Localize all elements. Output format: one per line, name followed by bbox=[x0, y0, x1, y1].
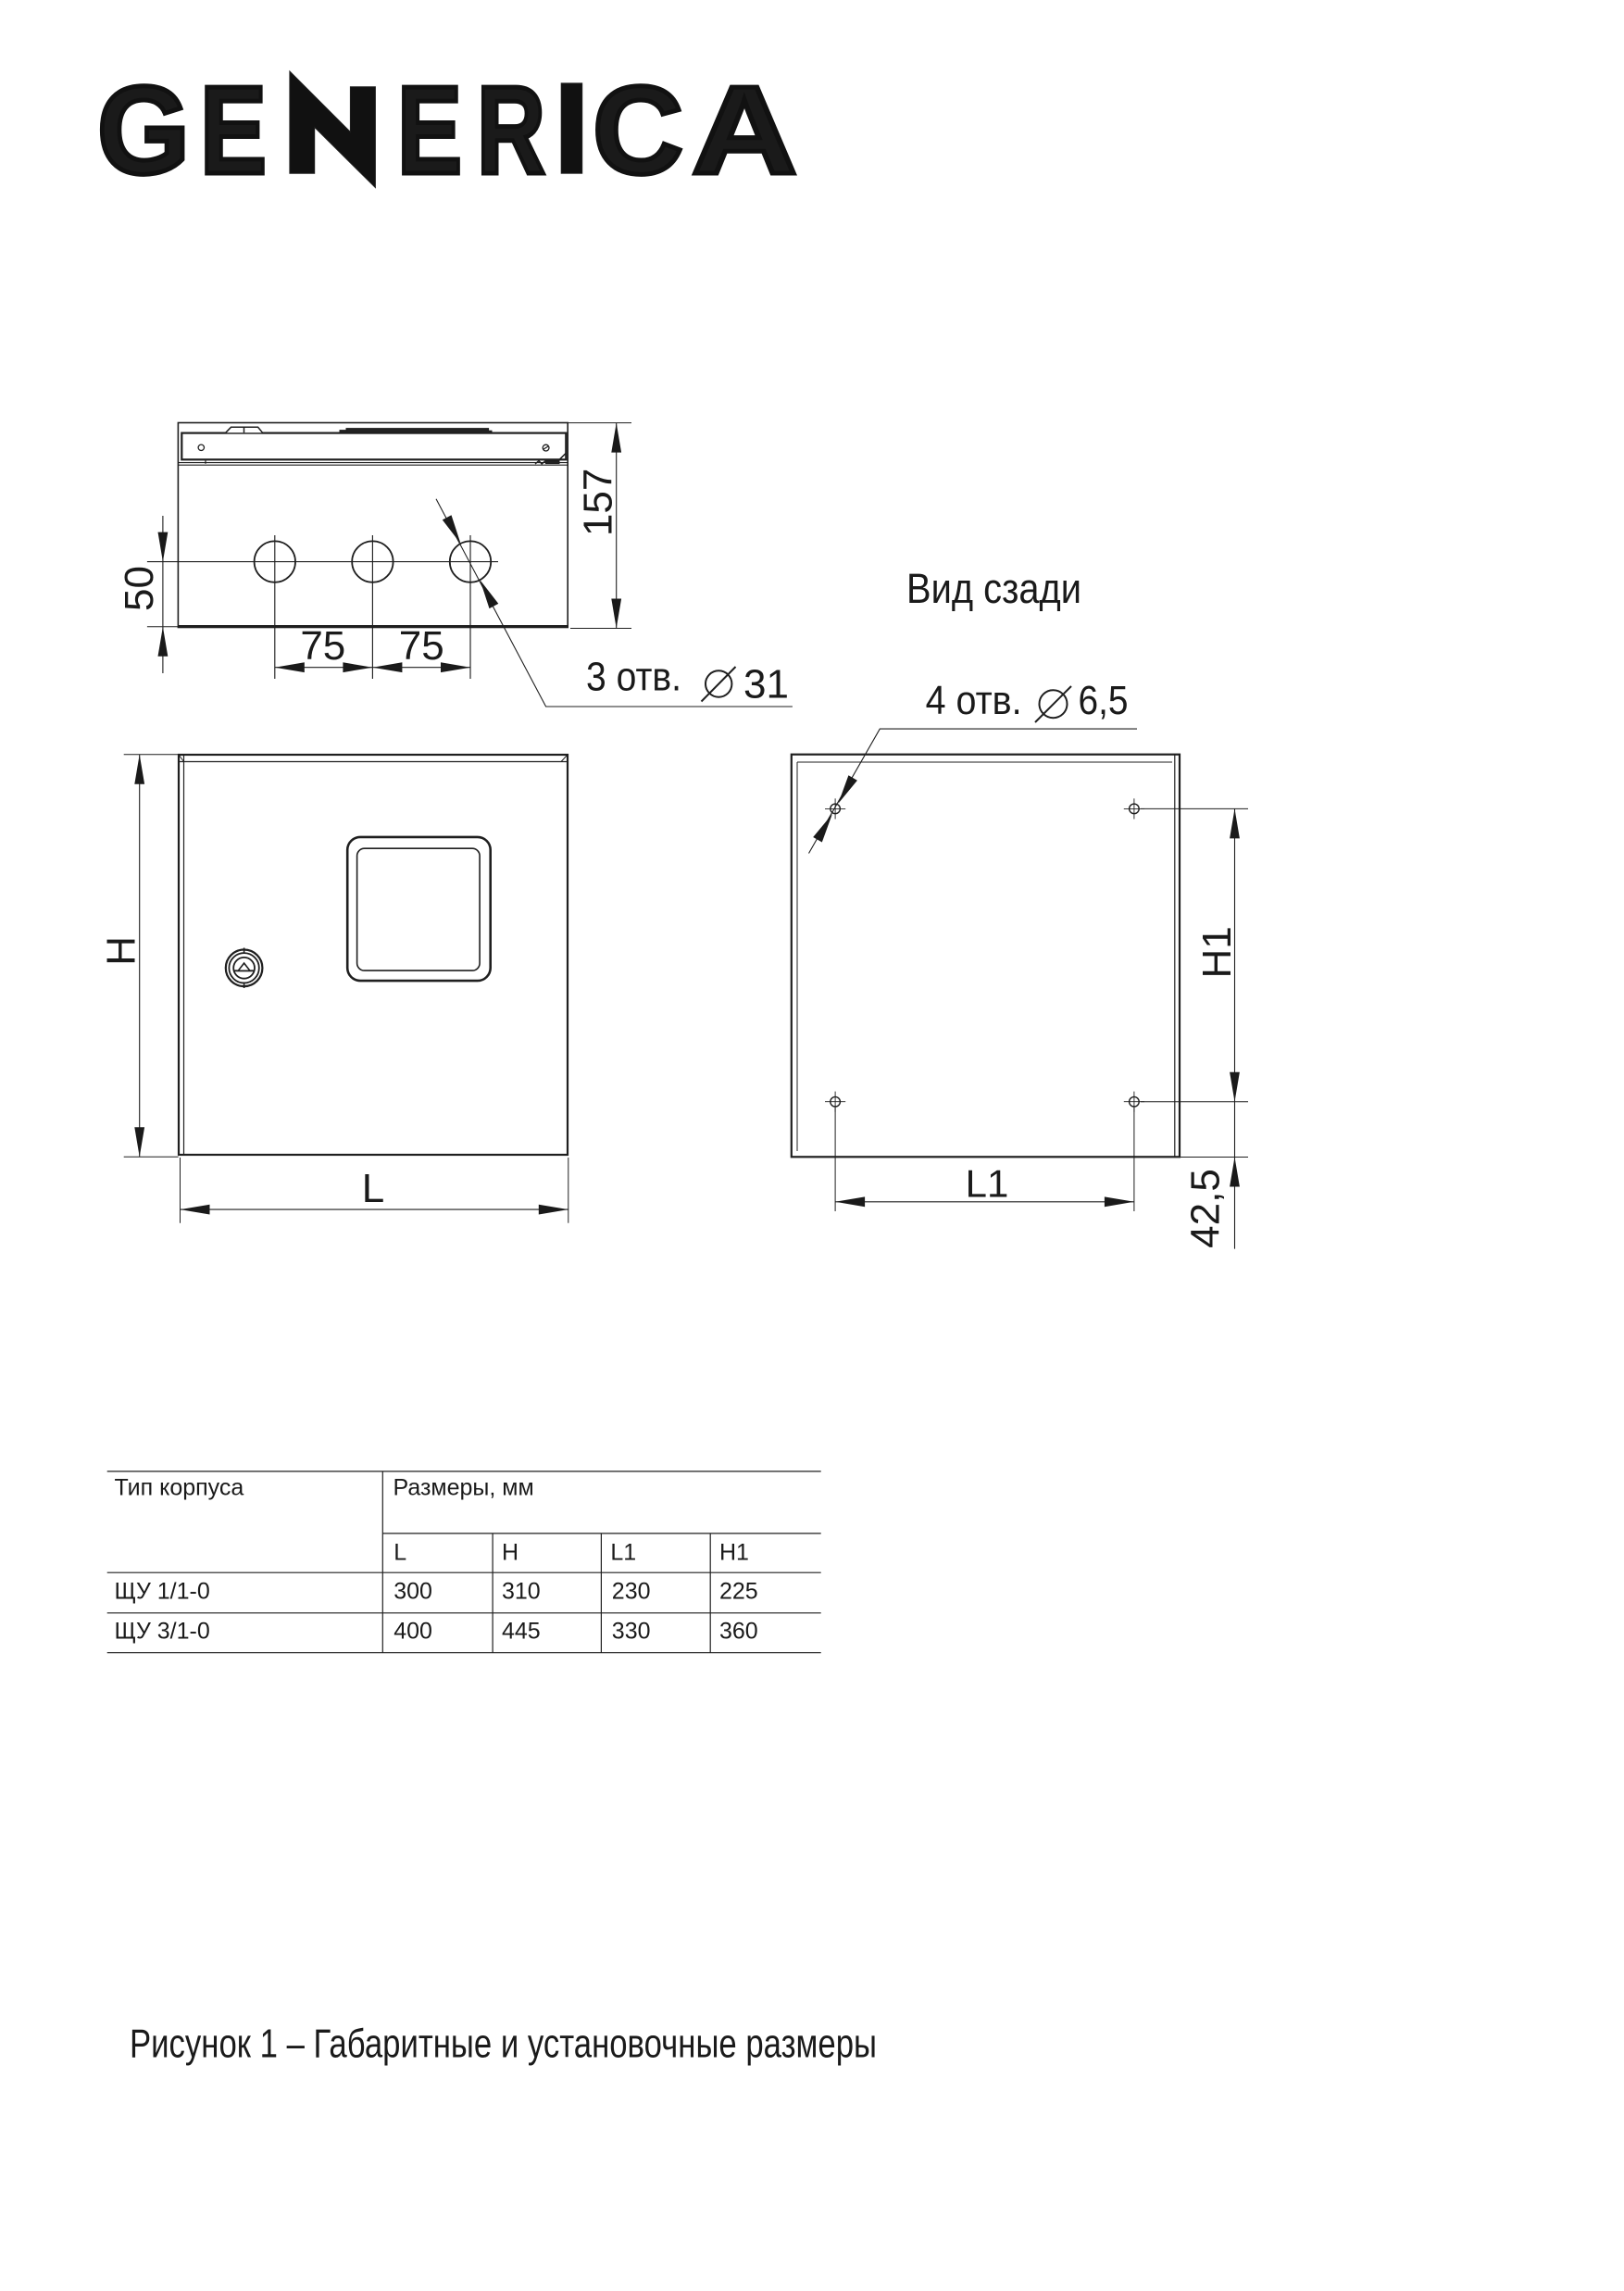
svg-text:310: 310 bbox=[502, 1579, 541, 1605]
svg-text:Вид сзади: Вид сзади bbox=[906, 565, 1081, 612]
svg-text:42,5: 42,5 bbox=[1183, 1169, 1229, 1248]
svg-text:E: E bbox=[397, 60, 462, 200]
svg-text:6,5: 6,5 bbox=[1079, 678, 1129, 723]
svg-text:31: 31 bbox=[743, 661, 789, 707]
svg-text:R: R bbox=[477, 60, 545, 200]
svg-text:157: 157 bbox=[576, 469, 621, 536]
svg-text:L1: L1 bbox=[610, 1539, 636, 1565]
svg-text:ЩУ 1/1-0: ЩУ 1/1-0 bbox=[115, 1579, 210, 1605]
svg-text:300: 300 bbox=[394, 1579, 432, 1605]
svg-text:3 отв.: 3 отв. bbox=[586, 655, 681, 700]
svg-text:360: 360 bbox=[719, 1619, 758, 1645]
svg-text:H1: H1 bbox=[719, 1539, 749, 1565]
svg-text:G: G bbox=[97, 60, 190, 200]
svg-text:4 отв.: 4 отв. bbox=[926, 678, 1022, 723]
svg-text:230: 230 bbox=[612, 1579, 651, 1605]
svg-text:400: 400 bbox=[394, 1619, 432, 1645]
svg-text:75: 75 bbox=[300, 623, 345, 669]
svg-text:C: C bbox=[593, 60, 683, 200]
svg-text:225: 225 bbox=[719, 1579, 758, 1605]
svg-text:H: H bbox=[99, 936, 144, 966]
svg-text:50: 50 bbox=[117, 566, 162, 611]
svg-text:330: 330 bbox=[612, 1619, 651, 1645]
svg-text:A: A bbox=[692, 60, 797, 200]
svg-text:H: H bbox=[502, 1539, 518, 1565]
svg-text:ЩУ 3/1-0: ЩУ 3/1-0 bbox=[115, 1619, 210, 1645]
svg-text:75: 75 bbox=[399, 623, 444, 669]
svg-text:L: L bbox=[362, 1166, 384, 1211]
svg-text:L: L bbox=[394, 1539, 406, 1565]
svg-text:H1: H1 bbox=[1194, 926, 1240, 978]
svg-text:E: E bbox=[200, 60, 267, 200]
svg-text:Рисунок 1 – Габаритные и устан: Рисунок 1 – Габаритные и установочные ра… bbox=[130, 2022, 877, 2067]
svg-text:445: 445 bbox=[502, 1619, 541, 1645]
svg-text:Размеры, мм: Размеры, мм bbox=[394, 1475, 534, 1501]
svg-text:Тип корпуса: Тип корпуса bbox=[115, 1475, 244, 1501]
svg-text:L1: L1 bbox=[966, 1162, 1009, 1206]
